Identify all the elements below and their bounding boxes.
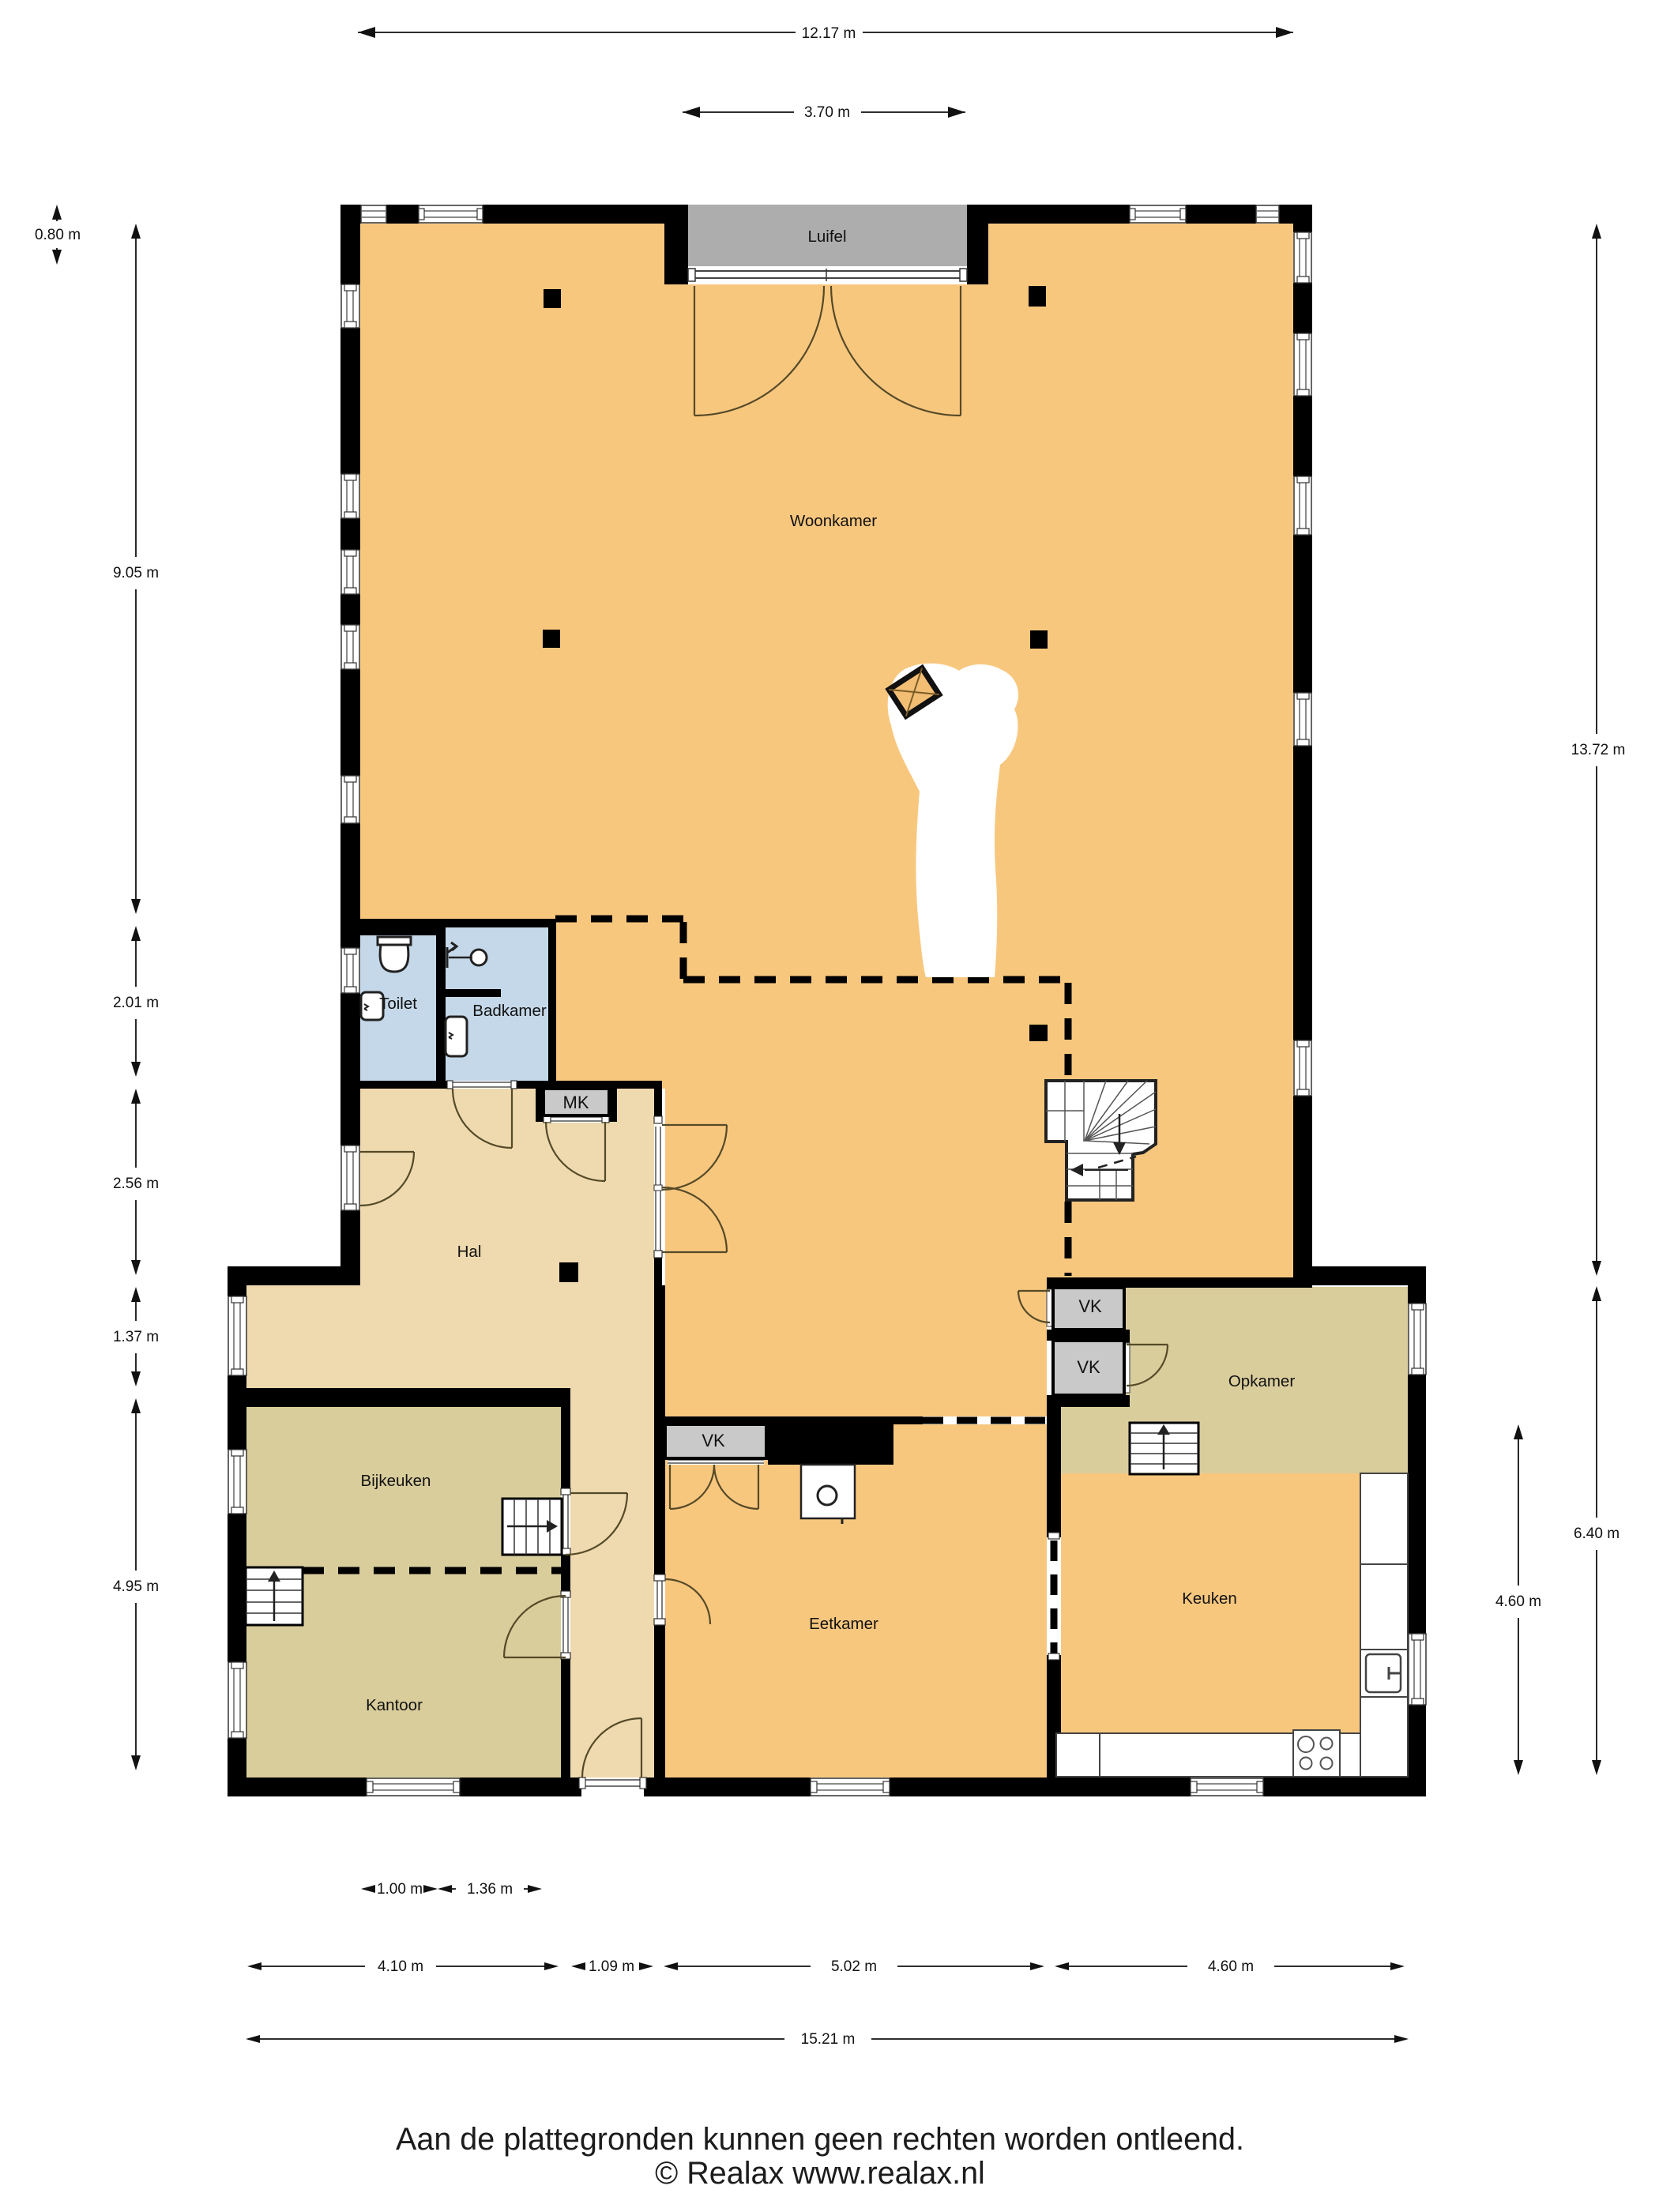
svg-text:6.40 m: 6.40 m [1574,1525,1619,1542]
svg-text:3.70 m: 3.70 m [804,104,850,121]
svg-text:VK: VK [1077,1357,1100,1377]
svg-text:Toilet: Toilet [379,995,417,1013]
svg-text:Aan de plattegronden kunnen ge: Aan de plattegronden kunnen geen rechten… [396,2122,1244,2157]
svg-text:0.80 m: 0.80 m [35,227,81,243]
svg-text:1.09 m: 1.09 m [589,1958,634,1975]
svg-text:VK: VK [702,1431,725,1450]
svg-text:4.60 m: 4.60 m [1495,1593,1541,1610]
svg-text:Hal: Hal [457,1243,482,1261]
svg-text:5.02 m: 5.02 m [831,1958,877,1975]
svg-text:2.01 m: 2.01 m [113,995,159,1011]
svg-text:4.10 m: 4.10 m [378,1958,423,1975]
svg-text:Bijkeuken: Bijkeuken [361,1472,431,1490]
svg-text:1.00 m: 1.00 m [377,1881,423,1898]
svg-text:4.60 m: 4.60 m [1208,1958,1254,1975]
svg-text:1.37 m: 1.37 m [113,1329,159,1345]
svg-text:12.17 m: 12.17 m [802,25,856,42]
svg-text:4.95 m: 4.95 m [113,1578,159,1595]
svg-text:Opkamer: Opkamer [1228,1372,1295,1390]
svg-text:Badkamer: Badkamer [472,1002,547,1020]
svg-text:Luifel: Luifel [807,228,846,246]
svg-text:1.36 m: 1.36 m [467,1881,513,1898]
svg-text:MK: MK [563,1093,589,1112]
svg-text:Keuken: Keuken [1182,1589,1237,1608]
svg-text:© Realax www.realax.nl: © Realax www.realax.nl [655,2156,985,2191]
svg-text:Eetkamer: Eetkamer [809,1615,878,1633]
svg-text:Kantoor: Kantoor [366,1696,423,1714]
svg-text:9.05 m: 9.05 m [113,565,159,581]
svg-text:15.21 m: 15.21 m [801,2031,856,2048]
svg-text:2.56 m: 2.56 m [113,1176,159,1192]
svg-text:13.72 m: 13.72 m [1571,742,1626,758]
svg-text:VK: VK [1078,1296,1102,1316]
svg-text:Woonkamer: Woonkamer [790,512,877,530]
